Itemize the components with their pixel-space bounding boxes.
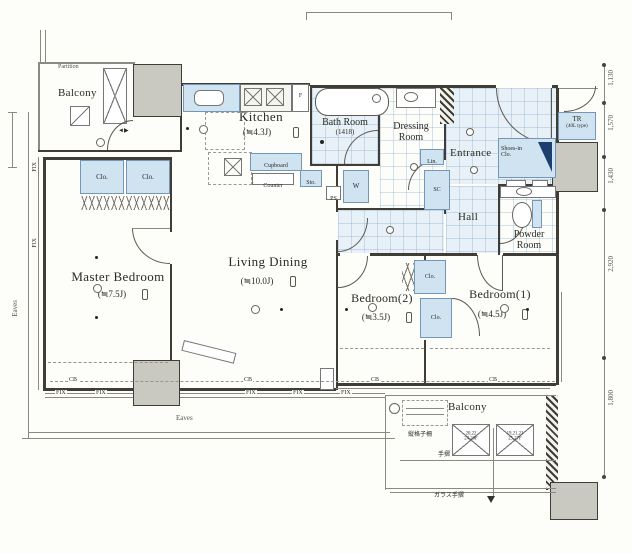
hatch-floors-line2: 25,27F — [500, 436, 530, 441]
counter: Counter — [252, 173, 294, 185]
ceiling-symbol — [500, 304, 509, 313]
eaves-line — [22, 438, 395, 439]
pillar — [552, 142, 598, 192]
counter-label: Counter — [263, 183, 282, 189]
trunk-room-type: (40L type) — [562, 124, 593, 129]
ceiling-symbol — [199, 125, 208, 134]
handrail-label: 手摺 — [438, 452, 450, 458]
linen-label: Lin. — [427, 159, 437, 165]
wall-segment — [424, 253, 477, 256]
cb-line — [50, 381, 555, 382]
balcony-slop-sink — [70, 106, 90, 126]
size-tag-icon — [406, 312, 412, 323]
wall-segment — [336, 383, 556, 386]
window-line — [336, 388, 550, 389]
window-line — [38, 157, 39, 390]
trunk-room: TR (40L type) — [558, 112, 596, 140]
fix-window-label: FIX — [95, 390, 107, 396]
wall-segment — [312, 164, 380, 166]
glass-rail-line — [390, 492, 556, 493]
entrance-door-leaf — [551, 88, 552, 144]
size-tag-icon — [142, 289, 148, 300]
tv-board — [181, 340, 236, 364]
closet: Clo. — [80, 160, 124, 194]
toilet-bowl — [512, 202, 532, 228]
ceiling-dash-line — [340, 348, 424, 349]
balcony-door-arc — [107, 120, 133, 150]
balcony-top-label: Balcony — [58, 88, 97, 100]
closet-label: Clo. — [142, 173, 154, 181]
fix-window-label: FIX — [55, 390, 67, 396]
bedroom2-label: Bedroom(2) — [338, 292, 426, 305]
sensor-dot — [186, 127, 189, 130]
glass-rail-line — [385, 488, 556, 489]
closet: Clo. — [414, 260, 446, 294]
living-label: Living Dining — [214, 255, 322, 269]
dim-tick — [602, 101, 606, 105]
toilet-tank — [532, 200, 542, 228]
size-tag-icon — [293, 127, 299, 138]
hall-label: Hall — [458, 212, 478, 224]
cb-label: CB — [68, 377, 78, 383]
ceiling-symbol — [466, 128, 474, 136]
partition-label: Partition — [58, 64, 79, 70]
master-door-leaf — [132, 228, 170, 229]
balcony-edge — [385, 395, 556, 396]
evacuation-hatch-floors: 20,22 24,26F — [456, 431, 486, 441]
dressing-label: Dressing Room — [382, 122, 440, 143]
bifold-closet-doors — [402, 263, 414, 291]
closet-label: Clo. — [96, 173, 108, 181]
bedroom1-door-arc — [477, 255, 503, 291]
eaves-line — [28, 112, 29, 438]
pipe-space — [320, 368, 334, 390]
master-size: (≒7.5J) — [84, 290, 140, 299]
bedroom1-door-leaf — [502, 255, 503, 291]
pillar — [133, 64, 182, 117]
fix-window-label: FIX — [32, 238, 38, 248]
glass-handrail-label: ガラス手摺 — [434, 493, 464, 499]
wall-segment — [424, 340, 426, 385]
sensor-dot — [345, 308, 348, 311]
cb-label: CB — [243, 377, 253, 383]
ceiling-symbol — [386, 226, 394, 234]
cupboard: Cupboard — [250, 153, 302, 171]
sensor-dot — [526, 308, 529, 311]
sensor-dot — [95, 316, 98, 319]
dim-tick — [8, 112, 17, 113]
fix-window-label: FIX — [245, 390, 257, 396]
fridge-label: F — [292, 93, 309, 99]
shoe-counter-icon — [538, 142, 552, 172]
kitchen-equipment — [224, 158, 242, 176]
balcony-bottom-label: Balcony — [448, 402, 487, 414]
sto-label: Sto. — [306, 180, 316, 186]
trunk-door-arc — [564, 86, 596, 112]
kitchen-label: Kitchen — [215, 110, 307, 124]
dim-tick — [602, 208, 606, 212]
dim-value: 2,920 — [608, 256, 615, 272]
burner-icon — [266, 88, 284, 106]
burner-icon — [244, 88, 262, 106]
bath-label: Bath Room — [314, 118, 376, 129]
shower-dot — [320, 140, 324, 144]
eaves-line — [28, 432, 390, 433]
fix-window-label: FIX — [32, 162, 38, 172]
linen-closet: Lin. — [420, 149, 444, 165]
dim-tick — [602, 155, 606, 159]
sensor-dot — [280, 308, 283, 311]
wall-segment — [370, 253, 424, 256]
drain-symbol — [96, 138, 105, 147]
size-tag-icon — [290, 276, 296, 287]
dim-value: 1,130 — [608, 70, 615, 86]
ceiling-dash-line — [430, 348, 550, 349]
sensor-dot — [95, 256, 98, 259]
shoes-closet-label: Shoes-in Clo. — [501, 146, 533, 159]
cupboard-label: Cupboard — [264, 163, 288, 169]
dim-value: 1,430 — [608, 168, 615, 184]
powder-basin — [516, 187, 532, 196]
sliding-door-arrows-icon: ◄▶ — [118, 128, 129, 134]
storage-closet-sc: SC — [424, 170, 450, 210]
dim-value: 1,570 — [608, 115, 615, 131]
hatch-floors-line2: 24,26F — [456, 436, 486, 441]
handrail-line — [400, 460, 556, 461]
bedroom2-door-arc — [338, 256, 368, 288]
ceiling-symbol — [251, 305, 260, 314]
tub-drain — [372, 94, 381, 103]
dim-line-right — [604, 65, 605, 478]
dim-tick — [602, 356, 606, 360]
partition-line — [45, 30, 46, 62]
cb-label: CB — [370, 377, 380, 383]
dim-line-top — [306, 12, 452, 13]
window-line — [45, 397, 385, 398]
trunk-room-label: TR — [559, 116, 595, 123]
wall-segment — [180, 115, 182, 152]
balcony-rail — [38, 62, 135, 64]
kitchen-size: (≒4.3J) — [222, 128, 292, 137]
cb-label: CB — [488, 377, 498, 383]
pillar — [133, 360, 180, 406]
storage-sto: Sto. — [300, 170, 322, 187]
hatched-wall — [440, 88, 454, 124]
ps-label: PS — [330, 196, 337, 202]
dim-tick — [451, 12, 452, 20]
ceiling-symbol — [93, 284, 102, 293]
washer-label: W — [353, 182, 360, 190]
pillar — [550, 482, 598, 520]
wall-segment — [503, 253, 556, 256]
dim-value: 1,800 — [608, 390, 615, 406]
closet: Clo. — [126, 160, 170, 194]
drain-arrow-icon — [487, 496, 495, 503]
balcony-rail — [38, 62, 40, 152]
evacuation-hatch-floors: 19,21,23 25,27F — [500, 431, 530, 441]
window-line — [561, 292, 562, 382]
wall-segment — [310, 85, 312, 166]
washer-space: W — [343, 170, 369, 203]
dim-tick — [602, 63, 606, 67]
eaves-label: Eaves — [12, 300, 19, 317]
eaves-label: Eaves — [176, 415, 193, 422]
kitchen-sink — [194, 90, 224, 106]
sc-label: SC — [433, 187, 440, 193]
bedroom2-size: (≒3.5J) — [348, 313, 404, 322]
water-heater — [402, 400, 448, 426]
ceiling-dash-line — [48, 362, 168, 363]
entrance-label: Entrance — [450, 148, 492, 160]
hatched-wall — [546, 395, 558, 490]
balcony-edge — [385, 395, 386, 490]
closet-label: Clo. — [425, 274, 435, 280]
dim-tick — [306, 12, 307, 20]
closet: Clo. — [420, 298, 452, 338]
dim-line-left — [12, 112, 13, 168]
drain-symbol — [389, 403, 400, 414]
wall-segment — [170, 157, 172, 232]
floor-plan: Partition Balcony ◄▶ F Cupboard Counter … — [0, 0, 632, 553]
ceiling-symbol — [368, 303, 377, 312]
ceiling-symbol — [470, 166, 478, 174]
drain-pipe-line — [493, 428, 494, 496]
fix-window-label: FIX — [340, 390, 352, 396]
vanity-basin — [404, 92, 418, 102]
closet-label: Clo. — [431, 315, 441, 321]
fix-window-label: FIX — [292, 390, 304, 396]
bifold-closet-doors — [80, 196, 170, 210]
dim-tick — [602, 475, 606, 479]
pipe-space: PS — [326, 186, 341, 200]
master-door-arc — [132, 228, 170, 264]
lattice-label: 縦格子柵 — [408, 432, 432, 438]
dim-tick — [8, 167, 17, 168]
wall-segment — [556, 192, 559, 385]
master-label: Master Bedroom — [62, 270, 174, 284]
wall-segment — [43, 157, 46, 391]
partition-line — [40, 30, 41, 62]
powder-label: Powder Room — [502, 230, 556, 251]
water-heater-louver — [406, 414, 444, 415]
wall-segment — [38, 150, 182, 152]
closet-door-arc — [452, 298, 480, 336]
water-heater-louver — [406, 408, 444, 409]
living-size: (≒10.0J) — [226, 277, 288, 286]
ac-unit-box — [103, 68, 127, 124]
